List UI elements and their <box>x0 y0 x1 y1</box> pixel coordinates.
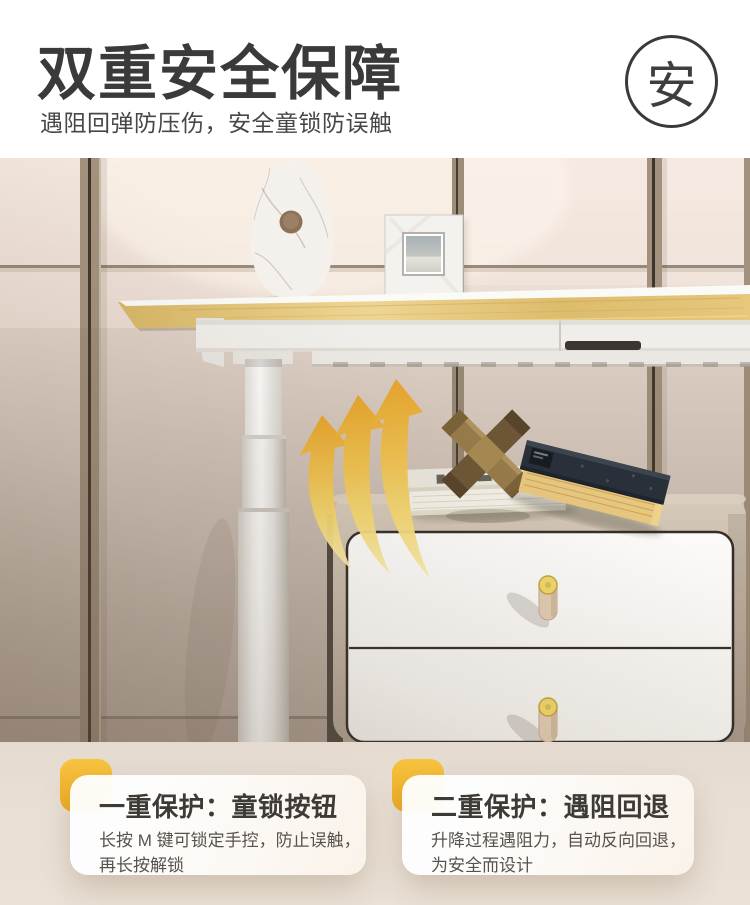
safety-seal-badge: 安 <box>625 35 718 128</box>
feature-card-child-lock: 一重保护：童锁按钮 长按 M 键可锁定手控，防止误触， 再长按解锁 <box>60 759 366 875</box>
card-body: 升降过程遇阻力，自动反向回退， 为安全而设计 <box>431 829 676 878</box>
card-body-line-1: 升降过程遇阻力，自动反向回退， <box>431 829 676 854</box>
scene-vignette <box>0 158 750 742</box>
page-title: 双重安全保障 <box>37 26 403 111</box>
card-title: 一重保护：童锁按钮 <box>99 787 348 824</box>
card-panel: 二重保护：遇阻回退 升降过程遇阻力，自动反向回退， 为安全而设计 <box>402 775 694 875</box>
feature-card-anti-collision: 二重保护：遇阻回退 升降过程遇阻力，自动反向回退， 为安全而设计 <box>392 759 694 875</box>
safety-seal-character: 安 <box>647 46 697 118</box>
card-body-line-2: 再长按解锁 <box>99 854 348 879</box>
card-panel: 一重保护：童锁按钮 长按 M 键可锁定手控，防止误触， 再长按解锁 <box>70 775 366 875</box>
desk-scene-illustration <box>0 158 750 742</box>
page-subtitle: 遇阻回弹防压伤，安全童锁防误触 <box>40 104 393 138</box>
card-body: 长按 M 键可锁定手控，防止误触， 再长按解锁 <box>99 829 348 878</box>
card-body-line-1: 长按 M 键可锁定手控，防止误触， <box>99 829 348 854</box>
card-body-line-2: 为安全而设计 <box>431 854 676 879</box>
product-safety-banner: 双重安全保障 遇阻回弹防压伤，安全童锁防误触 安 <box>0 0 750 905</box>
product-photo <box>0 158 750 742</box>
card-title: 二重保护：遇阻回退 <box>431 787 676 824</box>
